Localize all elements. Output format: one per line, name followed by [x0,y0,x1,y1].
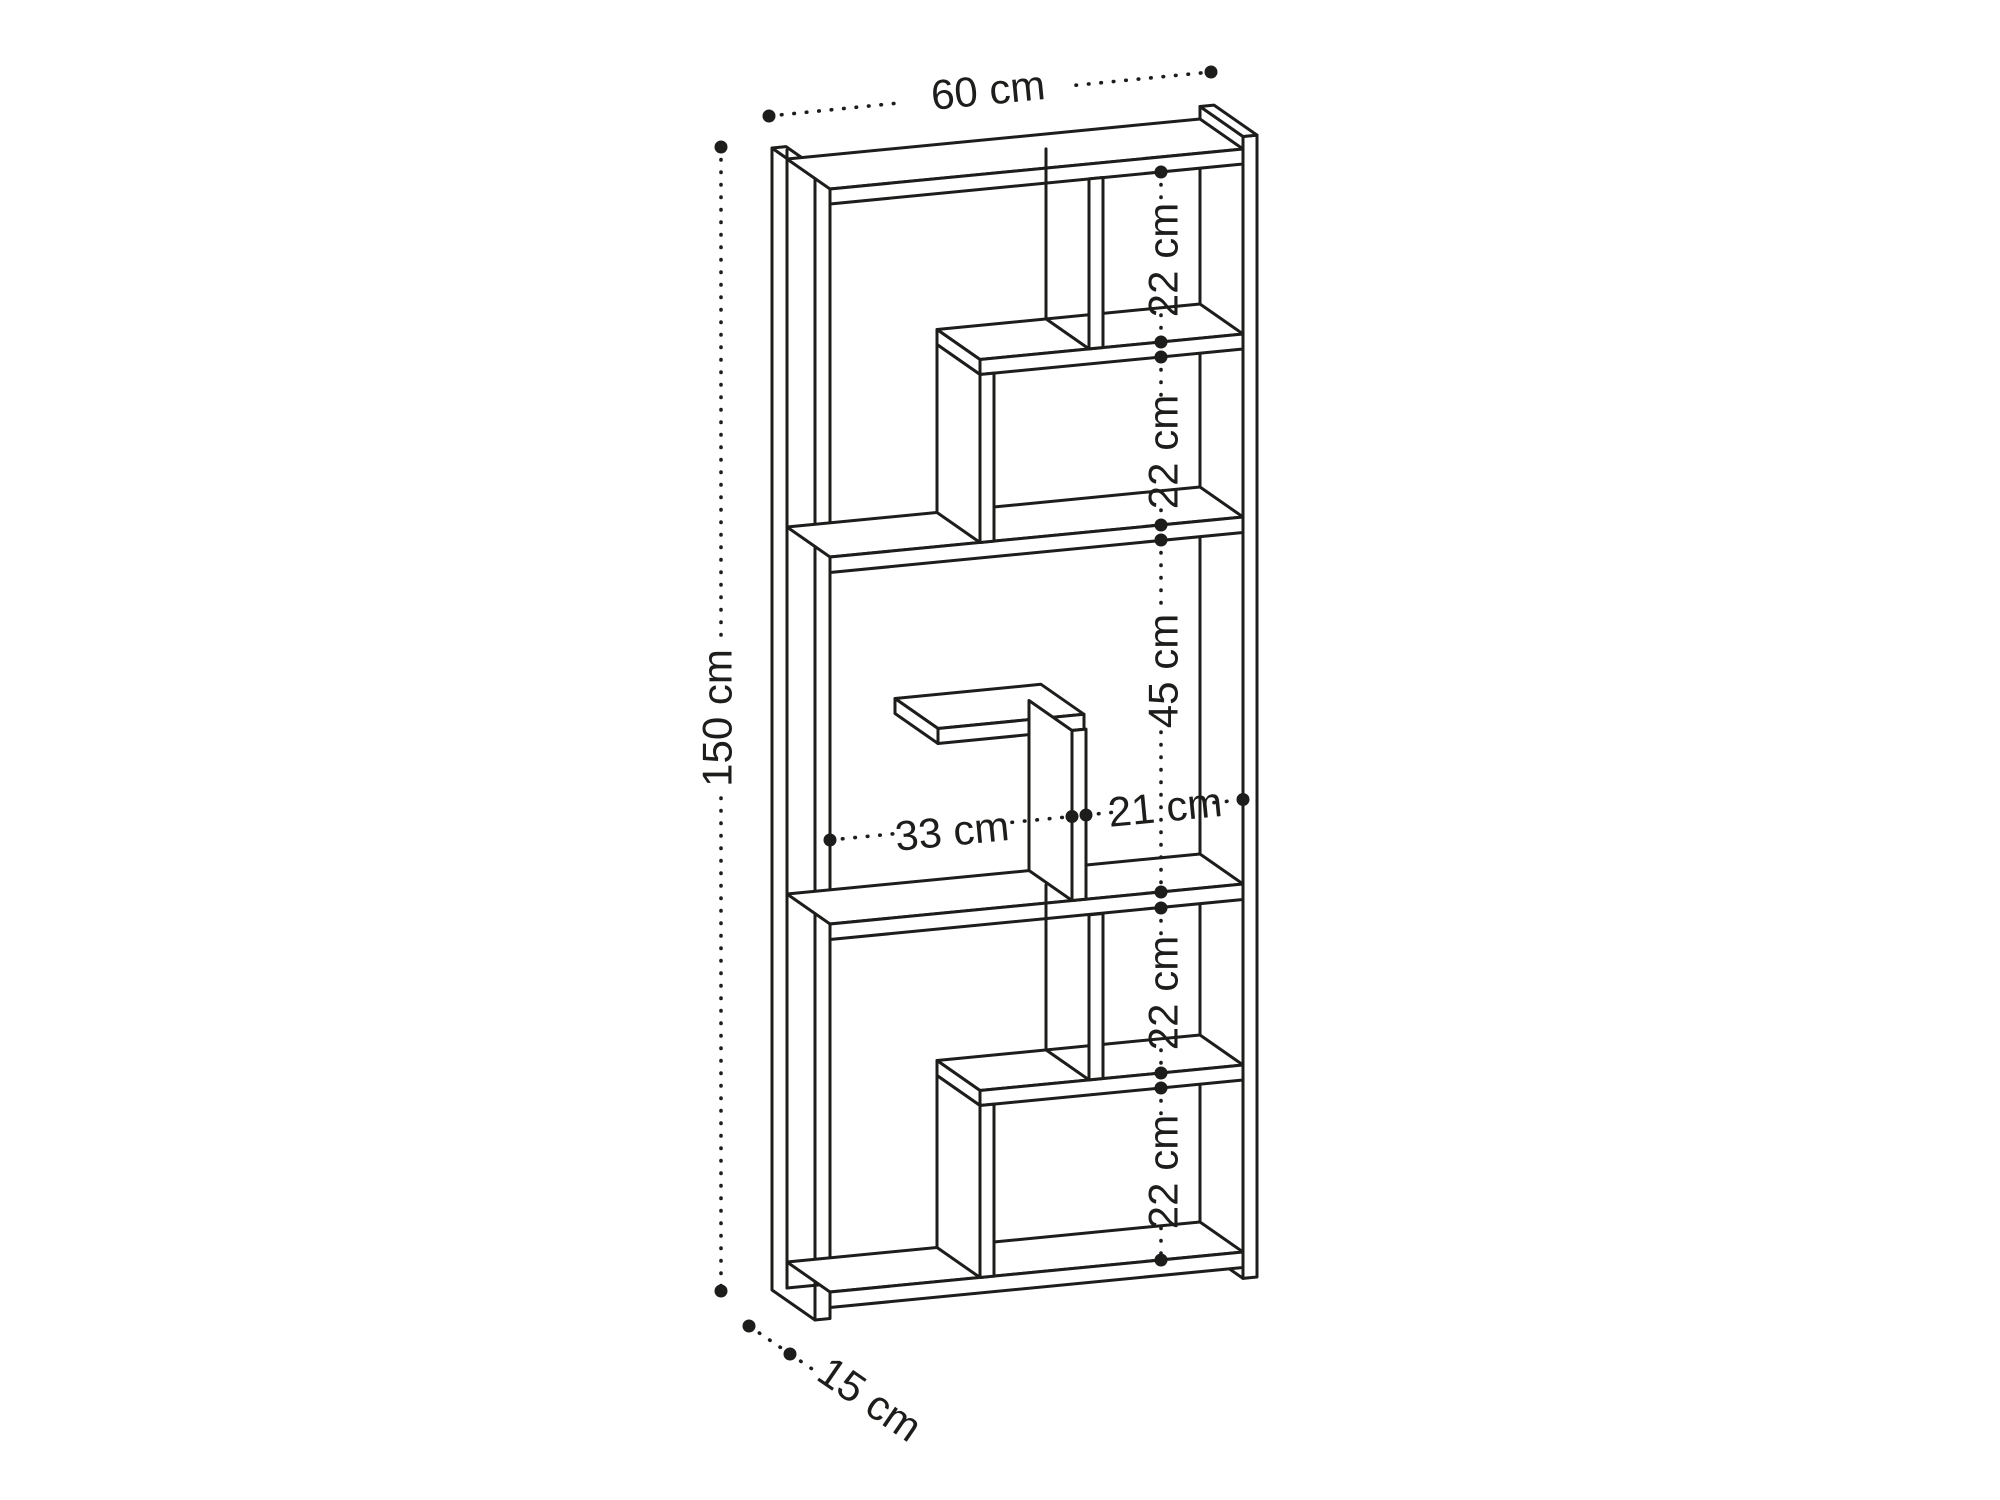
dim-dot [784,1348,797,1361]
dim-section4-label: 22 cm [1140,936,1187,1050]
dim-dot [1155,166,1168,179]
dim-dot [1155,886,1168,899]
dim-dot [1066,810,1079,823]
dim-dot [1205,66,1218,79]
bottom-board [787,1222,1243,1308]
dim-dot [1237,793,1250,806]
dim-section1-label: 22 cm [1140,203,1187,317]
dim-depth-label: 15 cm [810,1347,931,1451]
divider-5-side-face [1029,701,1072,901]
dim-dot [715,1285,728,1298]
dim-dot [1155,1067,1168,1080]
dim-depth: 15 cm [743,1320,931,1451]
divider-6-front-face [1089,914,1103,1080]
left-side-panel [772,147,830,1320]
divider-4-side-face [937,1076,980,1278]
shelf-c [787,854,1243,940]
divider-2-front-face [980,373,994,542]
dim-dot [763,110,776,123]
divider-2-side-face [937,345,980,543]
dim-dot [1080,809,1093,822]
divider-under-middle-shelf [1029,701,1086,901]
left-panel-outer-face [772,148,815,1320]
right-side-panel [1200,105,1257,1278]
right-panel-front-edge [1243,135,1257,1278]
dim-height-label: 150 cm [694,649,741,787]
dim-dot [1155,1082,1168,1095]
divider-under-shelf-a [937,345,994,543]
dim-shelf-left-label: 33 cm [893,802,1011,860]
divider-1-front-face [1089,178,1103,349]
divider-4-front-face [980,1104,994,1277]
dim-dot [1155,534,1168,547]
bookshelf-dimension-diagram: 60 cm 150 cm 15 cm 22 cm 22 cm 45 cm [0,0,2000,1500]
dim-dot [743,1320,756,1333]
top-board [787,119,1243,204]
divider-under-shelf-d [937,1076,994,1278]
dim-dot [1155,519,1168,532]
dim-dot [1155,351,1168,364]
dim-33-line-a [830,834,893,840]
dim-height: 150 cm [694,141,741,1298]
dim-width-line-right [1076,72,1211,85]
left-panel-front-edge [815,177,830,1321]
dim-dot [1155,1254,1168,1267]
dim-dot [1155,902,1168,915]
diagram-page: 60 cm 150 cm 15 cm 22 cm 22 cm 45 cm [0,0,2000,1500]
dim-section3-label: 45 cm [1140,614,1187,728]
dim-dot [824,834,837,847]
dim-dot [715,141,728,154]
right-panel-inner-face [1200,107,1243,1279]
dim-width-line-left [769,103,900,116]
dim-depth-line [749,1326,818,1373]
dim-dot [1155,336,1168,349]
dim-width: 60 cm [763,61,1218,122]
dim-section5-label: 22 cm [1140,1115,1187,1229]
dim-section2-label: 22 cm [1140,395,1187,509]
dim-width-label: 60 cm [929,61,1047,119]
